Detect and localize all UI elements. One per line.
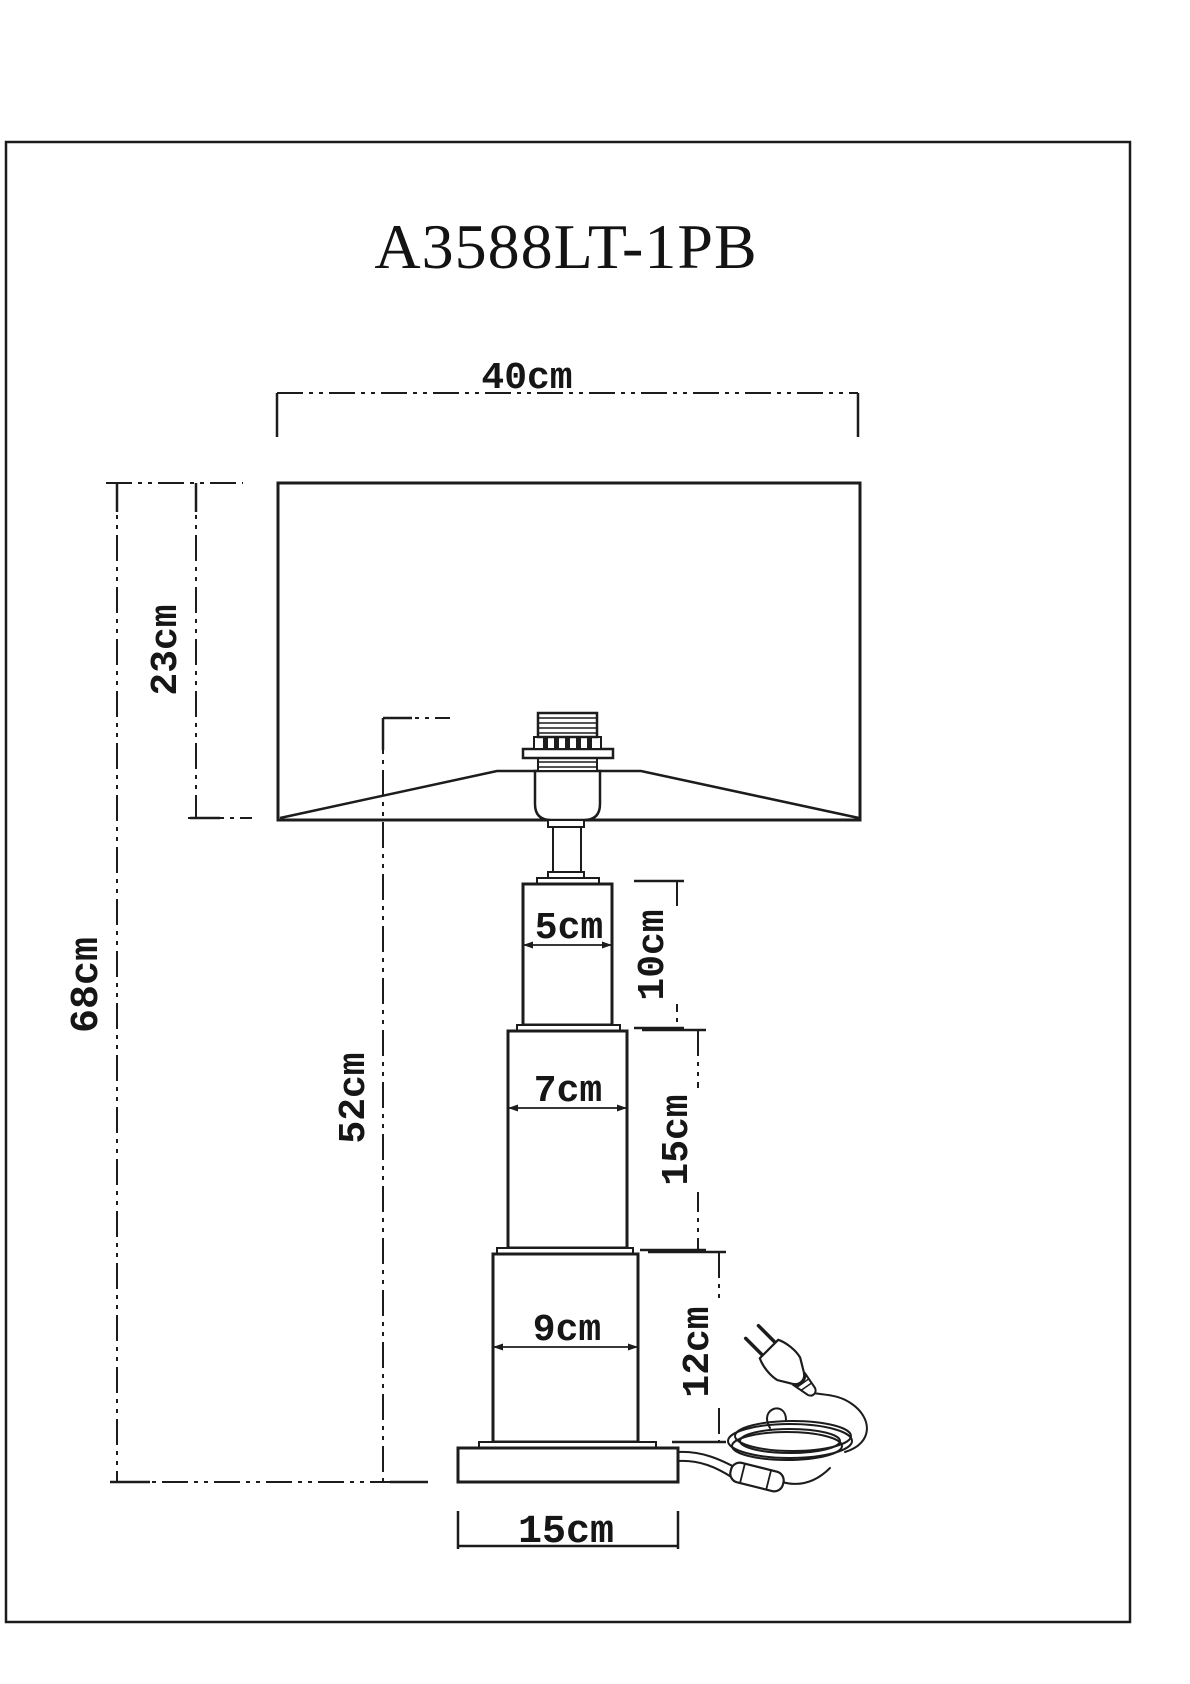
middle-column (508, 1031, 627, 1248)
lamp-dimension-drawing: A3588LT-1PB (0, 0, 1190, 1684)
cord-from-base-2 (678, 1461, 733, 1478)
label-body-height: 52cm (333, 1052, 376, 1143)
cord-coil (728, 1408, 852, 1460)
lamp-socket (523, 713, 613, 820)
dimension-lines (106, 393, 858, 1482)
stem-collar-top (548, 820, 584, 827)
label-upper-column-height: 10cm (632, 909, 675, 1000)
stem-tube (553, 827, 581, 872)
socket-body (535, 771, 600, 820)
power-plug (740, 1320, 826, 1406)
label-lower-column-width: 9cm (533, 1309, 601, 1352)
inline-switch (728, 1461, 785, 1493)
lamp-base (458, 1448, 678, 1482)
socket-flange (523, 749, 613, 758)
label-base-width: 15cm (518, 1510, 614, 1555)
label-middle-column-width: 7cm (534, 1070, 602, 1113)
label-total-height: 68cm (65, 937, 110, 1033)
label-lower-column-height: 12cm (677, 1306, 720, 1397)
label-shade-height: 23cm (145, 604, 188, 695)
label-middle-column-height: 15cm (656, 1094, 699, 1185)
label-upper-column-width: 5cm (535, 907, 603, 950)
dimension-ticks (110, 393, 858, 1549)
technical-drawing-page: A3588LT-1PB (0, 0, 1190, 1684)
model-number-title: A3588LT-1PB (374, 211, 757, 282)
label-shade-width: 40cm (481, 357, 572, 400)
upper-column (523, 884, 612, 1025)
cord-switch-to-coil (782, 1468, 830, 1484)
